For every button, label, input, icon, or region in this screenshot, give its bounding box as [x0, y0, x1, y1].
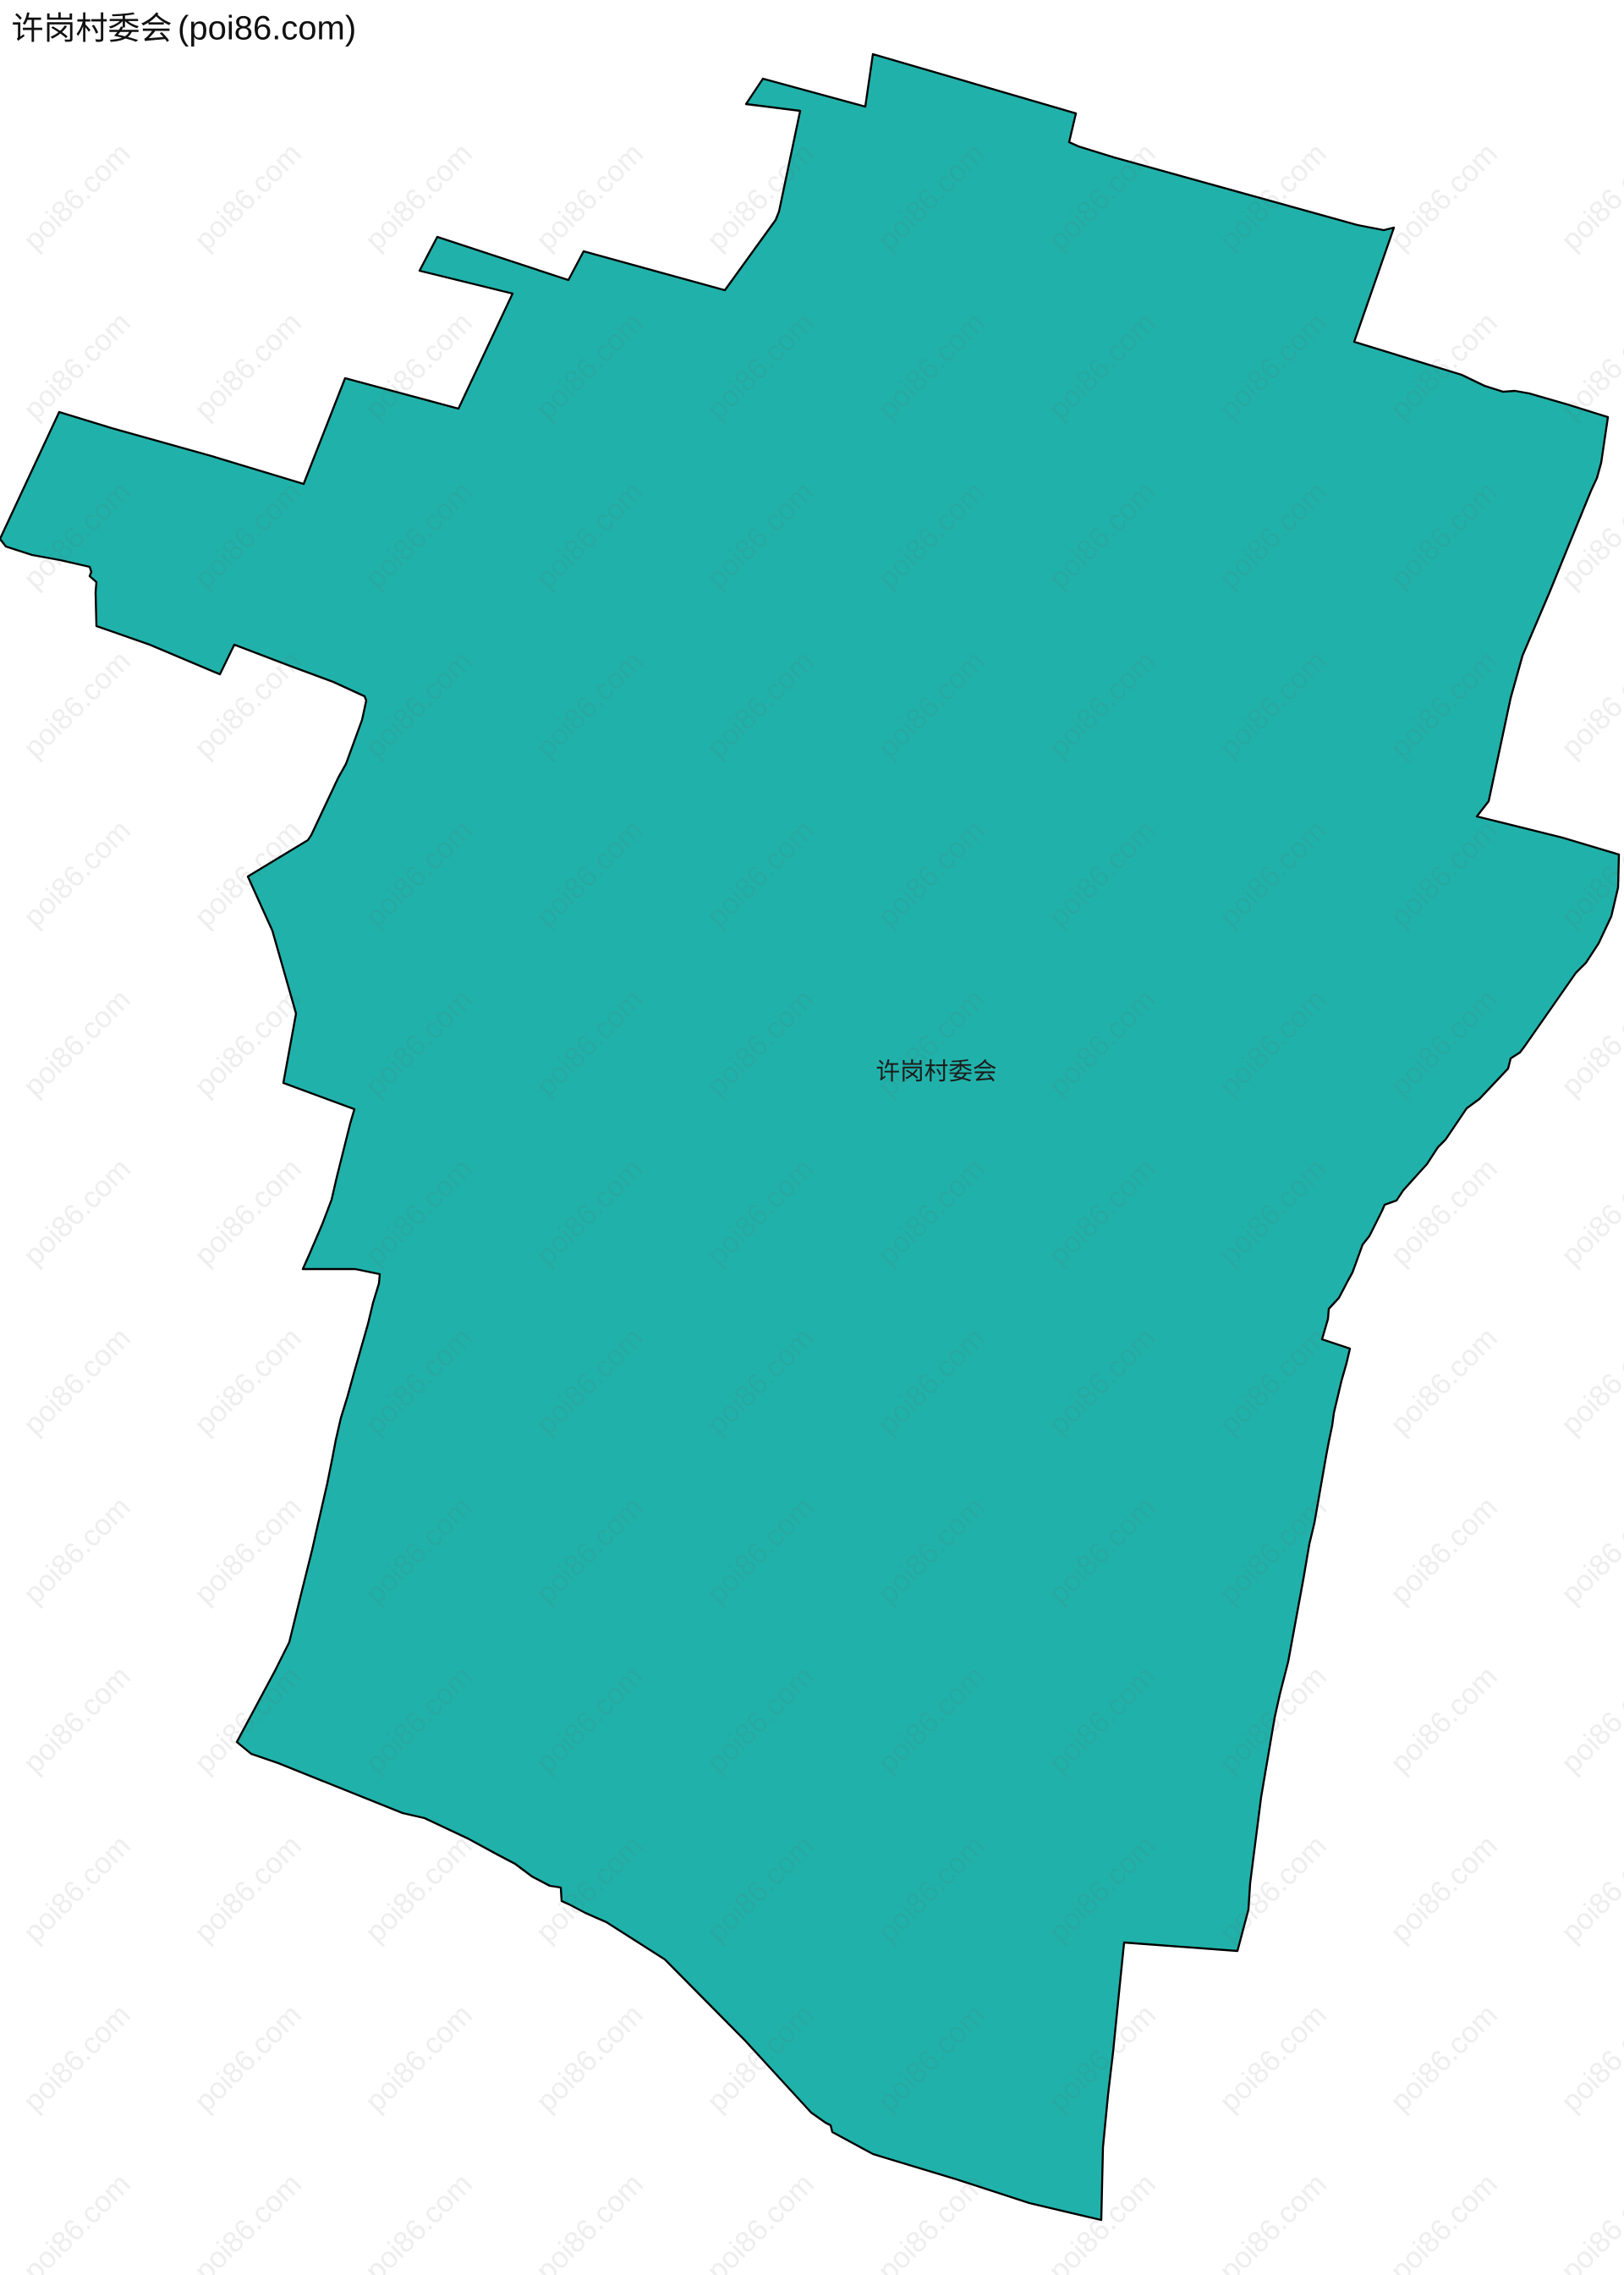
svg-text:(poi86.com): (poi86.com)	[178, 10, 356, 47]
